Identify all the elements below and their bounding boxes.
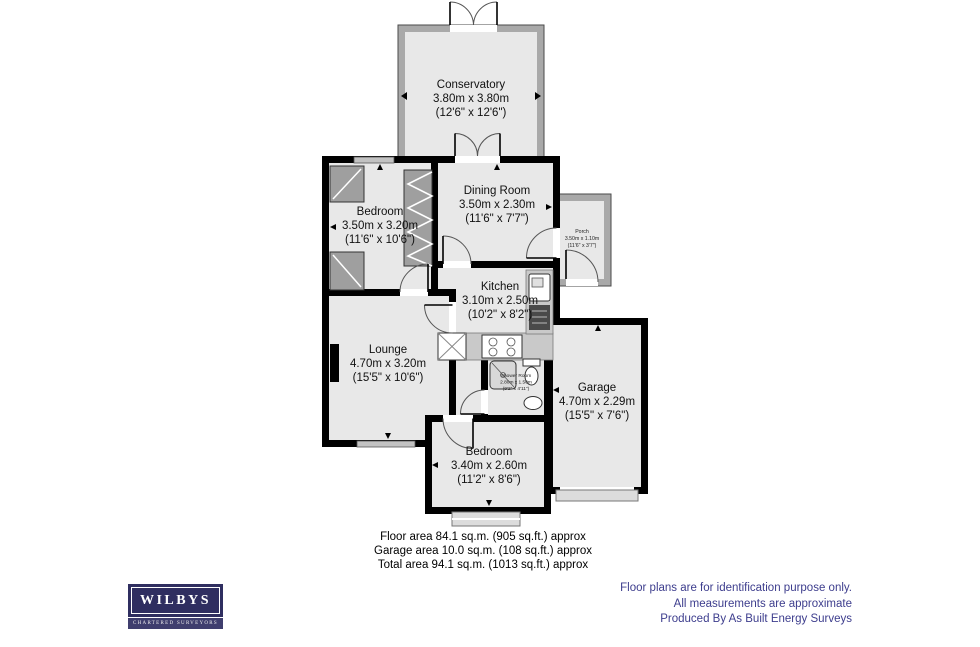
garage-door bbox=[556, 490, 638, 501]
conservatory-metric: 3.80m x 3.80m bbox=[433, 93, 509, 105]
chimney-breast-icon bbox=[330, 344, 339, 382]
bedroom2-metric: 3.40m x 2.60m bbox=[451, 460, 527, 472]
dining-imperial: (11'6" x 7'7") bbox=[465, 213, 529, 225]
garage-area-text: Garage area 10.0 sq.m. (108 sq.ft.) appr… bbox=[330, 544, 636, 558]
shower-imperial: (9'2" x 4'11") bbox=[503, 386, 530, 392]
garage-metric: 4.70m x 2.29m bbox=[559, 396, 635, 408]
garage-label: Garage bbox=[578, 382, 616, 394]
disclaimer-line-1: Floor plans are for identification purpo… bbox=[620, 581, 852, 597]
lounge-imperial: (15'5" x 10'6") bbox=[353, 372, 424, 384]
bedroom1-window bbox=[354, 157, 394, 163]
kitchen-metric: 3.10m x 2.50m bbox=[462, 295, 538, 307]
basin-icon bbox=[524, 397, 542, 410]
logo-tagline: CHARTERED SURVEYORS bbox=[128, 618, 223, 629]
bedroom1-metric: 3.50m x 3.20m bbox=[342, 220, 418, 232]
conservatory-exterior-door bbox=[450, 2, 474, 25]
area-summary: Floor area 84.1 sq.m. (905 sq.ft.) appro… bbox=[330, 530, 636, 572]
wilbys-logo: WILBYS CHARTERED SURVEYORS bbox=[128, 584, 223, 629]
total-area-text: Total area 94.1 sq.m. (1013 sq.ft.) appr… bbox=[330, 558, 636, 572]
dining-label: Dining Room bbox=[464, 185, 530, 197]
bedroom1-imperial: (11'6" x 10'6") bbox=[345, 234, 415, 246]
toilet-cistern-icon bbox=[523, 359, 540, 366]
logo-wordmark: WILBYS bbox=[131, 587, 220, 614]
bedroom2-label: Bedroom bbox=[466, 446, 513, 458]
lounge-window bbox=[357, 441, 415, 447]
room-dining bbox=[431, 156, 560, 268]
disclaimer-line-2: All measurements are approximate bbox=[620, 597, 852, 613]
dining-metric: 3.50m x 2.30m bbox=[459, 199, 535, 211]
hob-icon bbox=[482, 335, 522, 358]
conservatory-imperial: (12'6" x 12'6") bbox=[436, 107, 507, 119]
disclaimer: Floor plans are for identification purpo… bbox=[620, 581, 852, 628]
kitchen-imperial: (10'2" x 8'2") bbox=[468, 309, 533, 321]
lounge-chimney bbox=[330, 344, 339, 382]
garage-imperial: (15'5" x 7'6") bbox=[565, 410, 630, 422]
shower-label: Shower Room bbox=[501, 373, 531, 379]
lounge-metric: 4.70m x 3.20m bbox=[350, 358, 426, 370]
conservatory-label: Conservatory bbox=[437, 79, 506, 91]
bedroom2-imperial: (11'2" x 8'6") bbox=[457, 474, 521, 486]
porch-label: Porch bbox=[575, 229, 589, 235]
porch-metric: 3.50m x 1.10m bbox=[565, 236, 599, 242]
lounge-label: Lounge bbox=[369, 344, 407, 356]
disclaimer-line-3: Produced By As Built Energy Surveys bbox=[620, 612, 852, 628]
kitchen-label: Kitchen bbox=[481, 281, 519, 293]
floor-area-text: Floor area 84.1 sq.m. (905 sq.ft.) appro… bbox=[330, 530, 636, 544]
shower-metric: 2.80m x 1.50m bbox=[500, 380, 532, 386]
bedroom1-label: Bedroom bbox=[357, 206, 404, 218]
porch-imperial: (11'6" x 3'7") bbox=[568, 243, 597, 249]
